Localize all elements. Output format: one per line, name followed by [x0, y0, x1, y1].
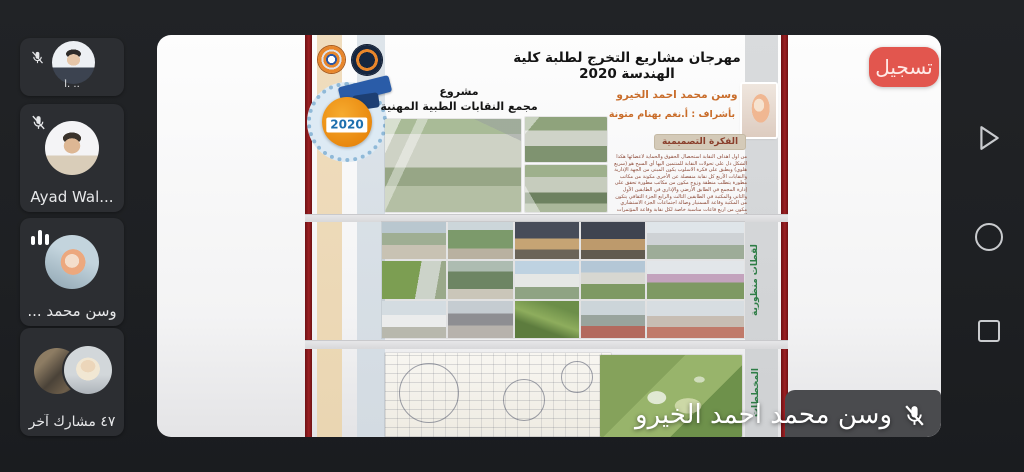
- render-thumbnail: [581, 301, 645, 338]
- render-thumbnail: [515, 301, 579, 338]
- section-divider: [305, 340, 788, 349]
- render-thumbnail: [515, 222, 579, 259]
- nav-home-button[interactable]: [966, 217, 1012, 257]
- student-name: وسن محمد احمد الخيرو: [607, 89, 747, 101]
- home-circle-icon: [974, 222, 1004, 252]
- perspective-grid-right: [647, 222, 744, 338]
- participant-tile-3[interactable]: وسن محمد ...: [20, 218, 124, 326]
- audio-level-icon: [31, 229, 49, 245]
- college-logo-icon: [352, 45, 382, 75]
- perspective-grid: [382, 222, 645, 338]
- render-aerial-main: [385, 119, 521, 212]
- project-title: مشروع مجمع النقابات الطبية المهنية: [379, 85, 539, 115]
- avatar: [64, 346, 112, 394]
- section-divider: [305, 214, 788, 222]
- participant-name: وسن محمد ...: [20, 302, 124, 320]
- slide-left-red-bar: [305, 35, 312, 437]
- student-photo: [742, 84, 776, 137]
- back-triangle-icon: [976, 123, 1002, 153]
- mic-off-icon: [902, 403, 927, 428]
- nav-recents-button[interactable]: [966, 311, 1012, 351]
- render-thumbnail: [382, 301, 446, 338]
- render-thumbnail: [448, 222, 512, 259]
- meeting-screen: أ. .. Ayad Wal... وسن محمد ... ٤٧ مشارك …: [0, 0, 1024, 472]
- nav-back-button[interactable]: [966, 118, 1012, 158]
- badge-year: 2020: [326, 117, 367, 132]
- avatar: [52, 41, 95, 84]
- active-speaker-overlay: وسن محمد احمد الخيرو: [545, 392, 937, 438]
- mic-off-icon: [30, 50, 45, 65]
- render-thumbnail: [448, 261, 512, 298]
- slide-right-red-bar: [781, 35, 788, 437]
- render-thumbnail: [448, 301, 512, 338]
- slide-title: مهرجان مشاريع التخرج لطلبة كلية الهندسة …: [505, 50, 749, 82]
- render-thumbnail: [515, 261, 579, 298]
- recording-badge[interactable]: تسجيل: [869, 47, 939, 87]
- recents-square-icon: [977, 319, 1001, 343]
- render-thumbnail: [581, 222, 645, 259]
- concept-heading: الفكرة التصميمية: [655, 135, 745, 149]
- render-thumbnail: [382, 261, 446, 298]
- participants-count-label: ٤٧ مشارك آخر: [20, 414, 124, 430]
- vertical-label-perspectives: لقطات منظورية: [750, 230, 774, 330]
- avatar: [45, 121, 99, 175]
- participants-more-tile[interactable]: ٤٧ مشارك آخر: [20, 328, 124, 436]
- shared-screen[interactable]: 2020 مهرجان مشاريع التخرج لطلبة كلية اله…: [157, 35, 941, 437]
- mic-off-icon: [30, 114, 47, 131]
- recording-badge-label: تسجيل: [875, 55, 933, 79]
- participant-tile-1[interactable]: أ. ..: [20, 38, 124, 96]
- concept-body: من اول اهداف النقابة استحصال الحقوق والح…: [609, 154, 747, 214]
- render-thumbnail: [647, 222, 744, 259]
- render-thumbnail: [581, 261, 645, 298]
- render-thumbnail: [647, 261, 744, 298]
- university-logo-icon: [318, 46, 345, 73]
- participant-name: أ. ..: [20, 79, 124, 90]
- avatar: [45, 235, 99, 289]
- render-thumb: [525, 165, 607, 212]
- participant-tile-2[interactable]: Ayad Wal...: [20, 104, 124, 212]
- render-thumbnail: [647, 301, 744, 338]
- supervisor-line: بأشراف : أ.نغم بهنام متونة: [597, 109, 747, 120]
- render-thumb: [525, 117, 607, 162]
- festival-2020-badge: 2020: [307, 82, 387, 162]
- active-speaker-name: وسن محمد احمد الخيرو: [635, 400, 892, 430]
- render-thumbnail: [382, 222, 446, 259]
- participant-name: Ayad Wal...: [20, 188, 124, 206]
